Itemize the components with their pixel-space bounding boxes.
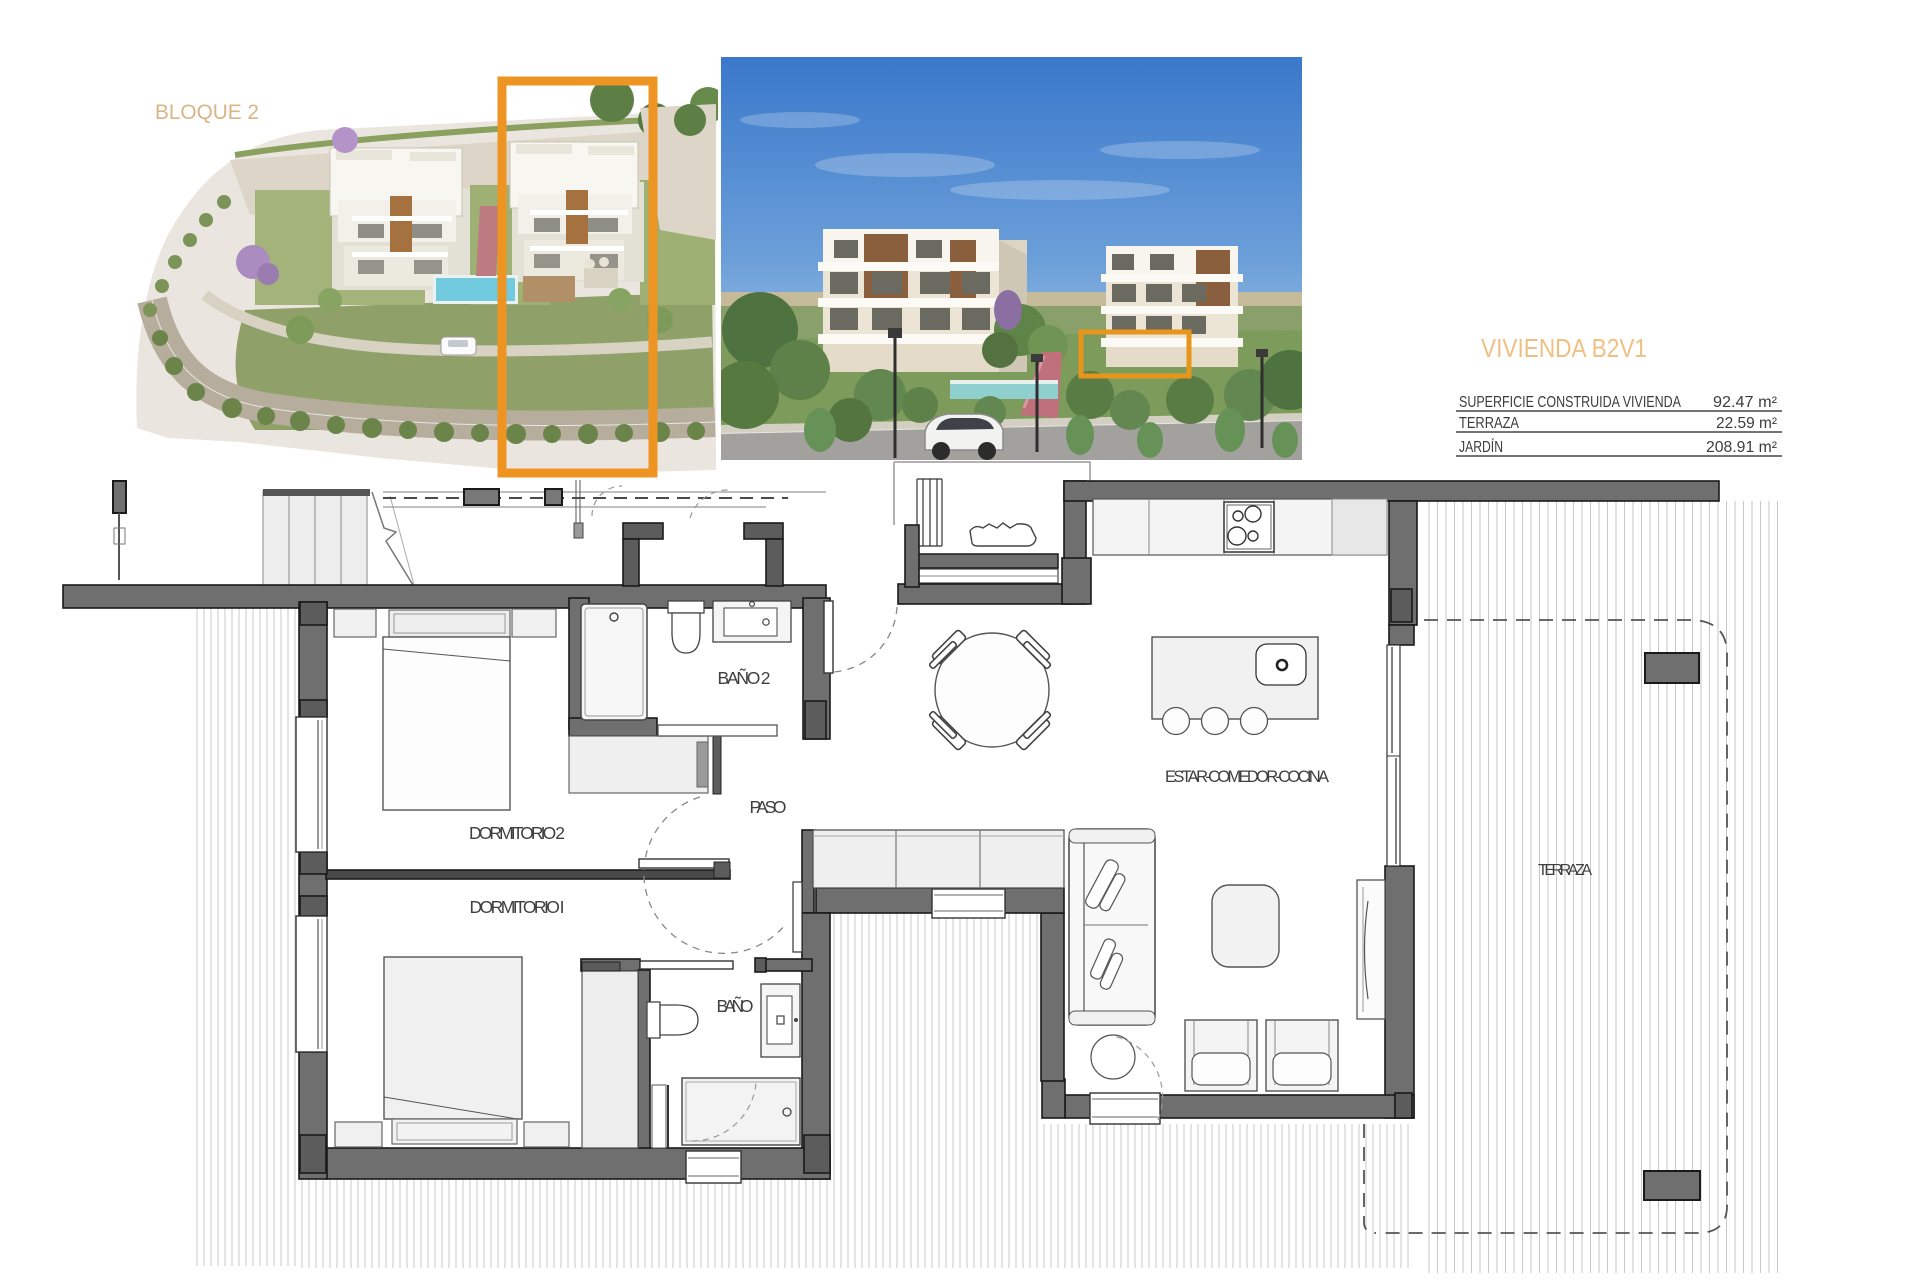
svg-text:ESTAR-COMEDOR-COCINA: ESTAR-COMEDOR-COCINA	[1165, 768, 1329, 786]
svg-text:208.91 m²: 208.91 m²	[1706, 439, 1777, 456]
svg-text:22.59 m²: 22.59 m²	[1716, 415, 1777, 432]
svg-text:DORMITORIO I: DORMITORIO I	[470, 897, 565, 917]
svg-text:BAÑO 2: BAÑO 2	[718, 667, 771, 688]
svg-text:DORMITORIO 2: DORMITORIO 2	[469, 823, 565, 843]
svg-text:92.47 m²: 92.47 m²	[1713, 394, 1777, 411]
svg-text:PASO: PASO	[750, 797, 787, 817]
svg-text:JARDÍN: JARDÍN	[1459, 439, 1503, 456]
svg-text:VIVIENDA B2V1: VIVIENDA B2V1	[1481, 333, 1647, 363]
svg-text:TERRAZA: TERRAZA	[1459, 415, 1520, 432]
svg-text:BLOQUE 2: BLOQUE 2	[155, 101, 259, 124]
svg-text:BAÑO: BAÑO	[717, 995, 754, 1016]
svg-text:TERRAZA: TERRAZA	[1538, 862, 1592, 879]
svg-text:SUPERFICIE CONSTRUIDA VIVIENDA: SUPERFICIE CONSTRUIDA VIVIENDA	[1459, 394, 1682, 411]
